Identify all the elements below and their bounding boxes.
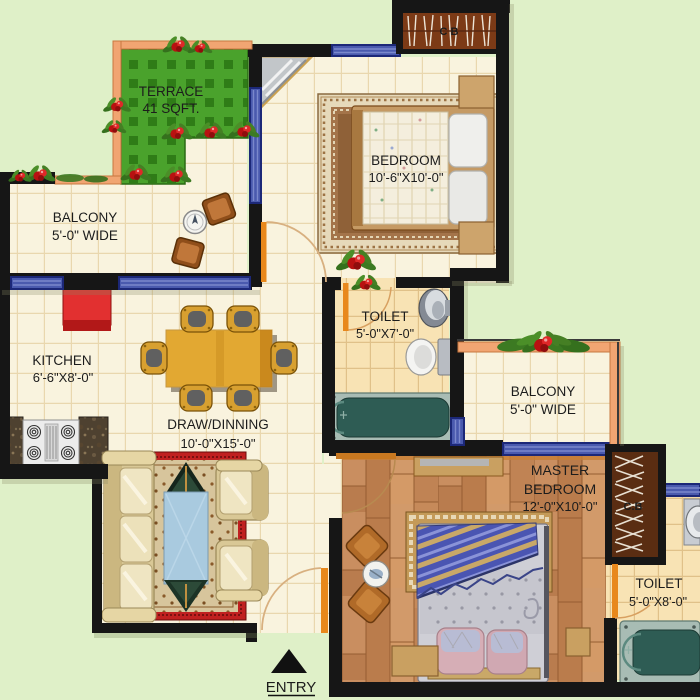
svg-text:BEDROOM: BEDROOM [524,481,596,497]
svg-text:41 SQFT.: 41 SQFT. [142,101,199,116]
svg-text:6'-6"X8'-0": 6'-6"X8'-0" [33,370,94,385]
svg-text:ENTRY: ENTRY [266,679,317,696]
svg-text:BALCONY: BALCONY [511,384,576,399]
svg-text:TERRACE: TERRACE [139,84,204,99]
svg-text:10'-0"X15'-0": 10'-0"X15'-0" [181,436,256,451]
svg-text:5'-0"X8'-0": 5'-0"X8'-0" [629,595,687,609]
svg-text:5'-0"X7'-0": 5'-0"X7'-0" [356,327,414,341]
svg-text:10'-6"X10'-0": 10'-6"X10'-0" [369,170,444,185]
svg-text:12'-0"X10'-0": 12'-0"X10'-0" [523,499,598,514]
svg-text:5'-0" WIDE: 5'-0" WIDE [510,402,576,417]
svg-text:BALCONY: BALCONY [53,210,118,225]
svg-text:C B: C B [440,26,459,38]
svg-text:BEDROOM: BEDROOM [371,153,441,168]
svg-text:TOILET: TOILET [361,309,408,324]
svg-text:C.B: C.B [624,501,643,513]
svg-text:MASTER: MASTER [531,462,589,478]
svg-text:5'-0" WIDE: 5'-0" WIDE [52,228,118,243]
svg-text:TOILET: TOILET [635,576,682,591]
svg-text:KITCHEN: KITCHEN [32,353,91,368]
svg-text:DRAW/DINNING: DRAW/DINNING [167,417,269,432]
